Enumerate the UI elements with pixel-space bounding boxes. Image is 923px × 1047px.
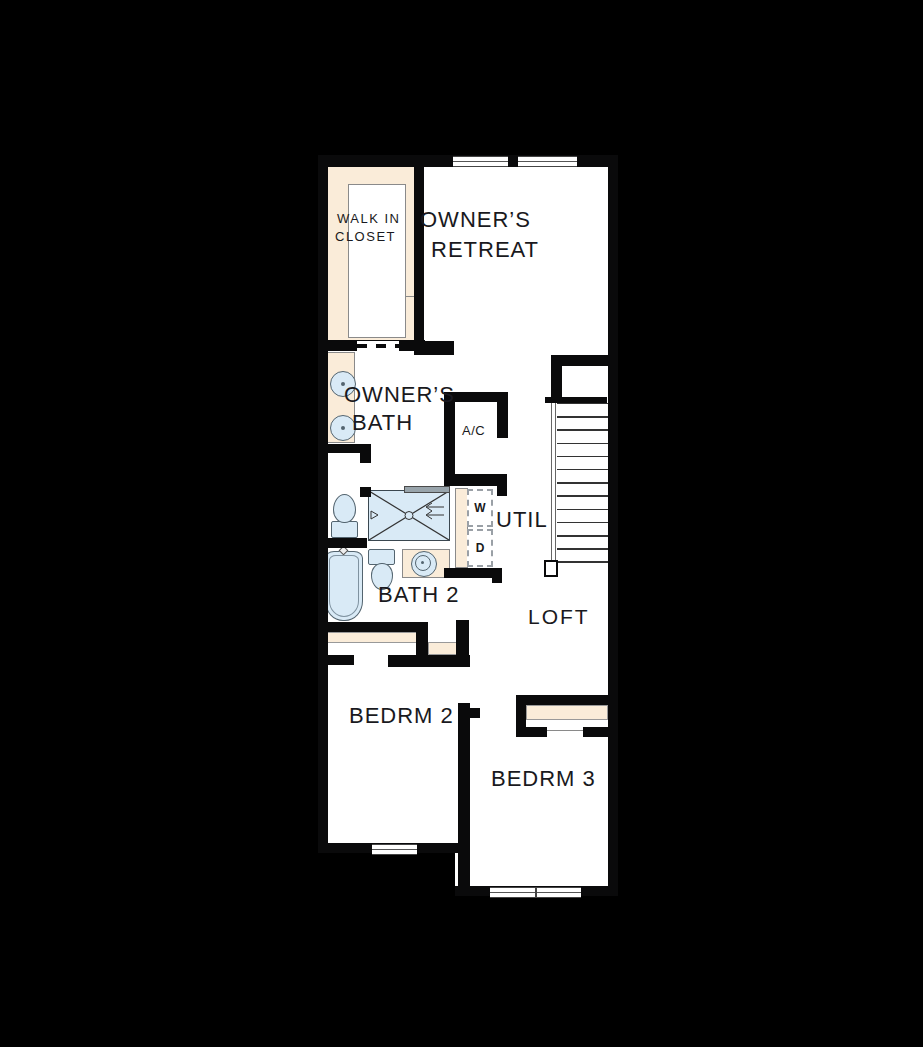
- shower-glass-door: [404, 486, 450, 493]
- dryer-label: D: [476, 541, 485, 555]
- floor-plan: W D WALK IN CLOSET OWNER’S RETRE: [0, 0, 923, 1047]
- wall-bedroom3-left: [458, 703, 470, 896]
- label-bedroom3: BEDRM 3: [491, 768, 596, 790]
- label-retreat-line1: OWNER’S: [420, 209, 531, 231]
- wall-bedroom3-closet-top: [516, 695, 618, 705]
- label-walkin-line2: CLOSET: [335, 230, 396, 243]
- wall-retreat-bottom: [414, 341, 454, 355]
- label-ac: A/C: [462, 424, 485, 437]
- bedroom3-closet-rod: [547, 730, 583, 731]
- wall-wc-jamb-top: [360, 444, 371, 463]
- window-bedroom2: [372, 844, 417, 855]
- wall-exterior-left: [318, 155, 328, 853]
- wall-util-stub-bottom: [492, 568, 502, 583]
- window-bedroom3-mullion: [535, 888, 537, 897]
- wall-wc-divider: [318, 538, 367, 548]
- bedroom3-closet-shelf: [526, 705, 608, 720]
- wall-bedroom3-closet-front-left: [516, 727, 547, 737]
- wall-bedroom2-closet-front-left: [318, 655, 354, 665]
- label-owners-bath-line1: OWNER’S: [344, 384, 455, 406]
- label-bath2: BATH 2: [378, 584, 459, 606]
- walkin-closet-dash-pattern: [357, 344, 399, 348]
- window-bedroom3: [490, 887, 581, 898]
- label-retreat-line2: RETREAT: [431, 239, 539, 261]
- shower: [368, 490, 450, 541]
- sink-bath2-drain: [421, 561, 424, 564]
- window-retreat-1: [453, 156, 508, 167]
- washer-box: W: [467, 489, 493, 527]
- label-bedroom2: BEDRM 2: [349, 705, 454, 727]
- wall-bath2-bottom: [318, 622, 428, 632]
- wall-stair-landing-bar: [545, 397, 607, 403]
- label-walkin-line1: WALK IN: [337, 212, 400, 225]
- wall-stair-top-v: [551, 355, 562, 403]
- walkin-closet-dashed-opening: [357, 341, 399, 351]
- toilet-tank-wc: [331, 521, 358, 538]
- wall-bedroom3-closet-front-right: [583, 727, 618, 737]
- walkin-closet-inner: [348, 184, 406, 338]
- wall-wc-jamb-bottom: [360, 487, 371, 497]
- sink-owners-2-drain: [341, 426, 345, 430]
- label-util: UTIL: [496, 509, 548, 531]
- wall-hall-vertical: [456, 620, 469, 667]
- wall-ac-right-stub: [497, 402, 508, 438]
- washer-label: W: [474, 501, 485, 515]
- wall-bedroom3-door-jamb: [470, 708, 480, 718]
- stairs-railing: [551, 403, 556, 575]
- stairs-treads: [557, 403, 608, 575]
- bedroom2-closet-shelf-right: [428, 642, 457, 655]
- wall-exterior-right: [608, 155, 618, 896]
- label-owners-bath-line2: BATH: [352, 412, 413, 434]
- dryer-box: D: [467, 529, 493, 567]
- wall-closet-retreat: [414, 155, 424, 351]
- bedroom2-closet-shelf-left: [325, 632, 417, 643]
- bathtub: [325, 551, 363, 621]
- label-loft: LOFT: [528, 606, 590, 627]
- stairs-newel-post: [544, 560, 558, 577]
- wall-util-stub-top: [497, 486, 507, 496]
- window-retreat-2: [518, 156, 577, 167]
- wall-ac-util-divider: [444, 474, 507, 486]
- toilet-bowl-wc: [333, 494, 356, 523]
